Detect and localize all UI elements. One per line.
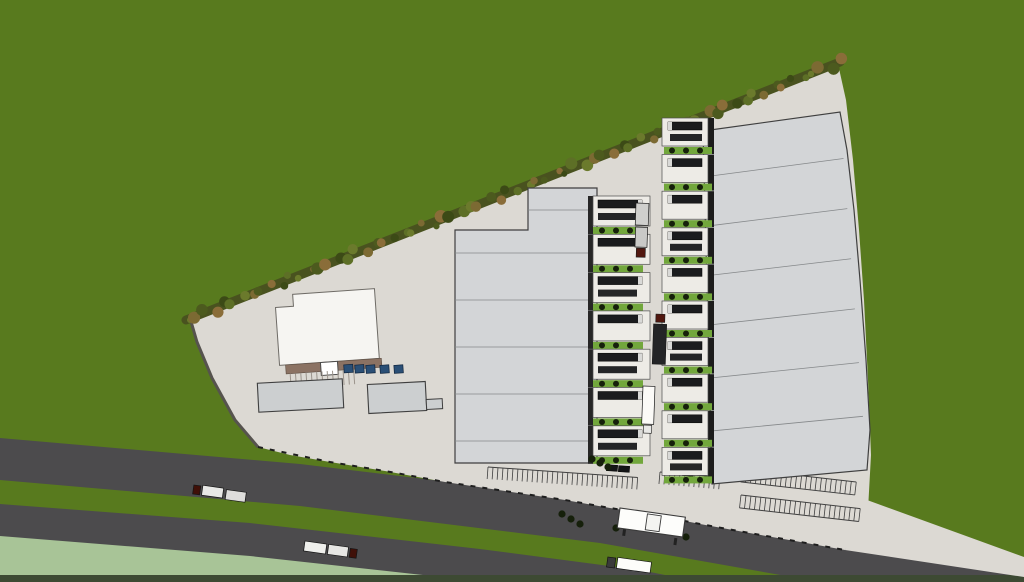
parked-car-blue: [394, 365, 404, 374]
tree-icon: [486, 192, 496, 202]
parked-car-blue: [366, 365, 376, 374]
site-plan-render: [0, 0, 1024, 582]
truck-trailer: [598, 200, 642, 208]
storage-building-b-roof: [367, 382, 426, 414]
dock-module: [588, 388, 650, 426]
bush-icon: [697, 148, 703, 154]
tree-icon: [787, 75, 794, 82]
bush-icon: [599, 381, 605, 387]
truck-trailer: [642, 386, 655, 424]
bush-icon: [627, 304, 633, 310]
bush-icon: [697, 221, 703, 227]
trailer-cab-end: [638, 392, 642, 400]
parked-car: [618, 466, 629, 473]
bush-icon: [669, 257, 675, 263]
truck-trailer: [668, 342, 702, 350]
truck-cab: [193, 485, 201, 495]
dock-module: [662, 264, 714, 300]
bush-icon: [697, 257, 703, 263]
bush-icon: [599, 228, 605, 234]
tree-icon: [636, 133, 645, 142]
trailer-cab-end: [638, 277, 642, 285]
bush-icon: [613, 266, 619, 272]
tree-icon: [284, 272, 291, 279]
tree-icon: [836, 53, 848, 65]
tree-icon: [530, 177, 538, 185]
tree-icon: [717, 100, 728, 111]
bush-icon: [683, 184, 689, 190]
bush-icon: [683, 440, 689, 446]
truck-trailer: [635, 227, 648, 247]
bush-icon: [669, 477, 675, 483]
trailer-cab-end: [668, 342, 672, 350]
tree-icon: [471, 201, 482, 212]
canopy-box: [320, 361, 338, 375]
truck-trailer: [668, 451, 702, 459]
truck-trailer: [670, 244, 702, 251]
bush-icon: [627, 266, 633, 272]
bush-icon: [683, 367, 689, 373]
bush-icon: [697, 440, 703, 446]
tree-icon: [342, 254, 353, 265]
bush-icon: [683, 331, 689, 337]
tree-icon: [759, 91, 768, 100]
trailer-cab-end: [668, 415, 672, 423]
dock-module: [662, 191, 714, 227]
tree-icon: [777, 84, 785, 92]
dock-shadow: [588, 349, 593, 387]
truck-trailer: [598, 353, 642, 361]
bush-icon: [669, 440, 675, 446]
bush-icon: [627, 419, 633, 425]
bush-icon: [613, 342, 619, 348]
dock-shadow: [588, 234, 593, 272]
bush-icon: [627, 228, 633, 234]
dock-module: [588, 349, 650, 387]
truck-cab: [636, 248, 645, 257]
tree-icon: [746, 89, 755, 98]
truck-trailer: [598, 430, 642, 438]
trailer-cab-end: [638, 353, 642, 361]
dock-shadow: [588, 273, 593, 311]
bush-icon: [697, 184, 703, 190]
trailer-cab-end: [668, 451, 672, 459]
bush-icon: [697, 404, 703, 410]
trailer-cab-end: [668, 378, 672, 386]
tree-icon: [561, 171, 567, 177]
bush-icon: [576, 520, 583, 527]
tree-icon: [442, 211, 454, 223]
tree-icon: [407, 229, 414, 236]
dock-module: [662, 228, 714, 264]
tree-icon: [240, 291, 250, 301]
tree-icon: [254, 287, 263, 296]
tree-icon: [565, 157, 577, 169]
truck-trailer: [668, 232, 702, 240]
bush-icon: [599, 342, 605, 348]
tree-icon: [377, 238, 386, 247]
bush-icon: [669, 184, 675, 190]
bush-icon: [613, 228, 619, 234]
bush-icon: [627, 381, 633, 387]
bush-icon: [613, 457, 619, 463]
tree-icon: [268, 280, 276, 288]
trailer-cab-end: [668, 159, 672, 167]
tree-icon: [732, 98, 742, 108]
dock-module: [662, 155, 714, 191]
bush-icon: [697, 294, 703, 300]
gatehouse-midsection: [645, 514, 661, 532]
tree-icon: [391, 234, 399, 242]
bush-icon: [697, 331, 703, 337]
warehouse-right-roof: [703, 112, 870, 484]
model-viewport[interactable]: [0, 0, 1024, 582]
bush-icon: [683, 477, 689, 483]
trailer-cab-end: [668, 195, 672, 203]
tree-icon: [500, 185, 509, 194]
truck-trailer: [668, 122, 702, 130]
tree-icon: [212, 307, 223, 318]
bush-icon: [588, 455, 595, 462]
bush-icon: [613, 419, 619, 425]
trailer-cab-end: [638, 430, 642, 438]
bush-icon: [627, 342, 633, 348]
dock-module: [662, 411, 714, 447]
truck-cab: [643, 425, 651, 433]
bush-icon: [669, 331, 675, 337]
dock-row-right: [662, 118, 714, 483]
tree-icon: [295, 275, 302, 282]
tree-icon: [811, 61, 824, 74]
truck-trailer: [670, 354, 702, 361]
truck-trailer: [598, 213, 637, 220]
dock-module: [662, 301, 714, 337]
bush-icon: [669, 221, 675, 227]
truck-cab: [349, 548, 357, 558]
bush-icon: [599, 304, 605, 310]
dock-module: [662, 118, 714, 154]
bush-icon: [627, 457, 633, 463]
storage-building-b-annex: [426, 399, 443, 410]
bush-icon: [683, 257, 689, 263]
truck-trailer: [668, 378, 702, 386]
trailer-cab-end: [668, 122, 672, 130]
tree-icon: [497, 195, 507, 205]
dock-module: [662, 338, 714, 374]
bush-icon: [599, 419, 605, 425]
truck-trailer: [635, 203, 649, 225]
tree-icon: [281, 282, 289, 290]
dock-shadow: [588, 311, 593, 349]
tree-icon: [514, 187, 523, 196]
bush-icon: [683, 148, 689, 154]
bush-icon: [613, 304, 619, 310]
dock-module: [588, 311, 650, 349]
bush-icon: [613, 381, 619, 387]
tree-icon: [418, 220, 425, 227]
bush-icon: [669, 404, 675, 410]
tree-icon: [609, 149, 619, 159]
dock-shadow: [588, 388, 593, 426]
truck-trailer: [668, 268, 702, 276]
truck-trailer: [652, 324, 666, 364]
truck-trailer: [668, 195, 702, 203]
truck-trailer: [668, 415, 702, 423]
dock-module: [662, 447, 714, 483]
bush-icon: [683, 221, 689, 227]
truck-cab: [656, 314, 665, 322]
tree-icon: [196, 304, 208, 316]
tree-icon: [594, 150, 605, 161]
dock-module: [588, 273, 650, 311]
bush-icon: [669, 294, 675, 300]
tree-icon: [541, 177, 548, 184]
bush-icon: [669, 367, 675, 373]
truck-trailer: [598, 315, 642, 323]
tree-icon: [348, 244, 358, 254]
truck-trailer: [598, 443, 637, 450]
trailer-cab-end: [638, 315, 642, 323]
bush-icon: [558, 510, 565, 517]
bottom-edge-strip: [0, 575, 1024, 582]
truck-trailer: [598, 366, 637, 373]
dock-module: [588, 426, 650, 464]
trailer-cab-end: [668, 305, 672, 313]
bush-icon: [697, 367, 703, 373]
storage-building-a: [257, 379, 343, 412]
tree-icon: [650, 135, 658, 143]
trailer-cab-end: [668, 268, 672, 276]
truck-trailer: [598, 290, 637, 297]
truck-trailer: [668, 305, 702, 313]
tree-icon: [654, 128, 662, 136]
truck-cab: [606, 557, 615, 568]
parked-car-blue: [355, 365, 365, 374]
truck-trailer: [670, 463, 702, 470]
trailer-cab-end: [668, 232, 672, 240]
tree-icon: [623, 143, 632, 152]
bush-icon: [604, 463, 611, 470]
truck-trailer: [598, 277, 642, 285]
parked-car-blue: [380, 365, 390, 374]
warehouse-right: [703, 112, 870, 484]
bush-icon: [697, 477, 703, 483]
bush-icon: [683, 404, 689, 410]
tree-icon: [433, 223, 439, 229]
truck-trailer: [668, 159, 702, 167]
bush-icon: [567, 515, 574, 522]
bush-icon: [599, 266, 605, 272]
bush-icon: [669, 148, 675, 154]
tree-icon: [224, 299, 234, 309]
tree-icon: [319, 259, 331, 271]
dock-shadow: [588, 196, 593, 234]
truck-trailer: [598, 392, 642, 400]
tree-icon: [363, 247, 373, 257]
bush-icon: [596, 459, 603, 466]
dock-module: [662, 374, 714, 410]
tree-icon: [828, 63, 840, 75]
parked-car-blue: [344, 364, 354, 373]
bush-icon: [683, 294, 689, 300]
truck-trailer: [670, 134, 702, 141]
